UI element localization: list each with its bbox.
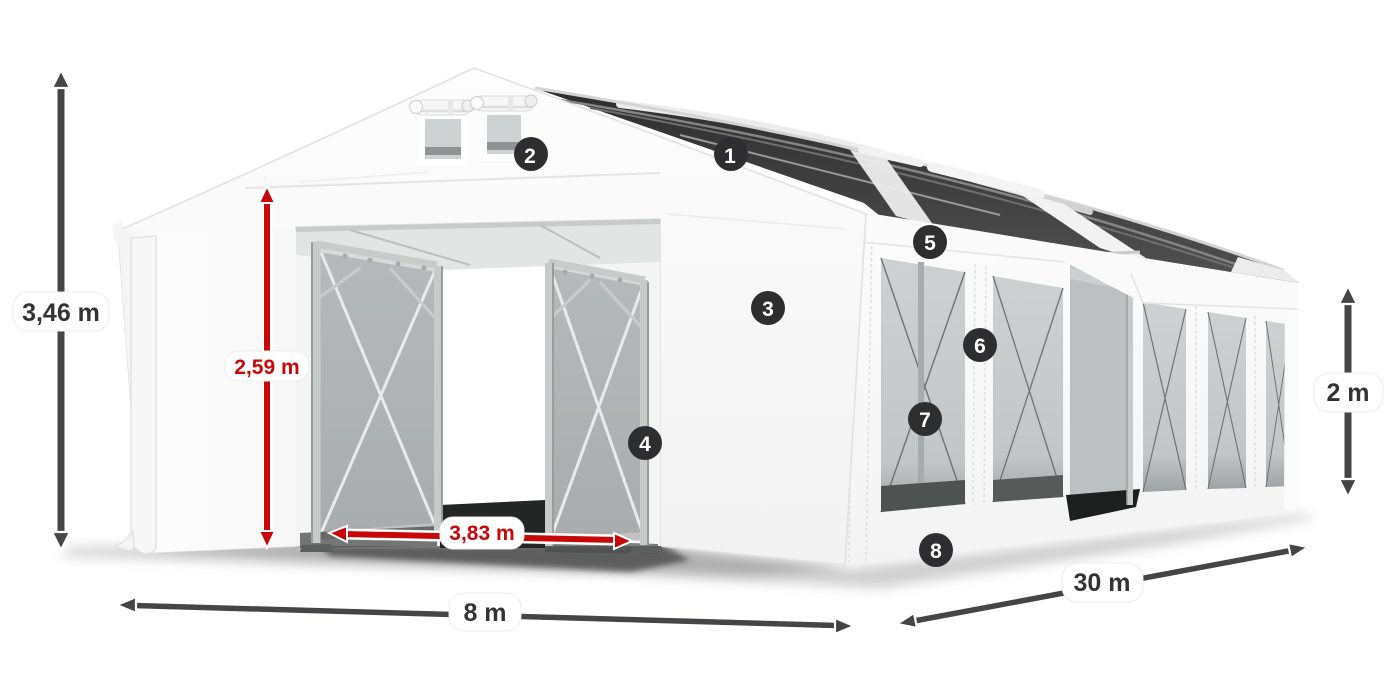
- svg-text:2 m: 2 m: [1326, 379, 1369, 407]
- svg-text:8: 8: [930, 540, 942, 563]
- svg-text:3: 3: [762, 298, 774, 321]
- svg-text:8 m: 8 m: [463, 599, 506, 627]
- svg-text:4: 4: [639, 433, 651, 456]
- svg-text:5: 5: [924, 232, 936, 255]
- svg-text:3,83 m: 3,83 m: [449, 522, 514, 545]
- svg-text:6: 6: [974, 335, 986, 358]
- svg-text:2,59 m: 2,59 m: [234, 356, 299, 379]
- svg-text:3,46 m: 3,46 m: [22, 299, 100, 327]
- svg-text:7: 7: [919, 409, 931, 432]
- svg-text:1: 1: [724, 145, 736, 168]
- svg-text:2: 2: [524, 145, 536, 168]
- svg-text:30 m: 30 m: [1074, 569, 1131, 597]
